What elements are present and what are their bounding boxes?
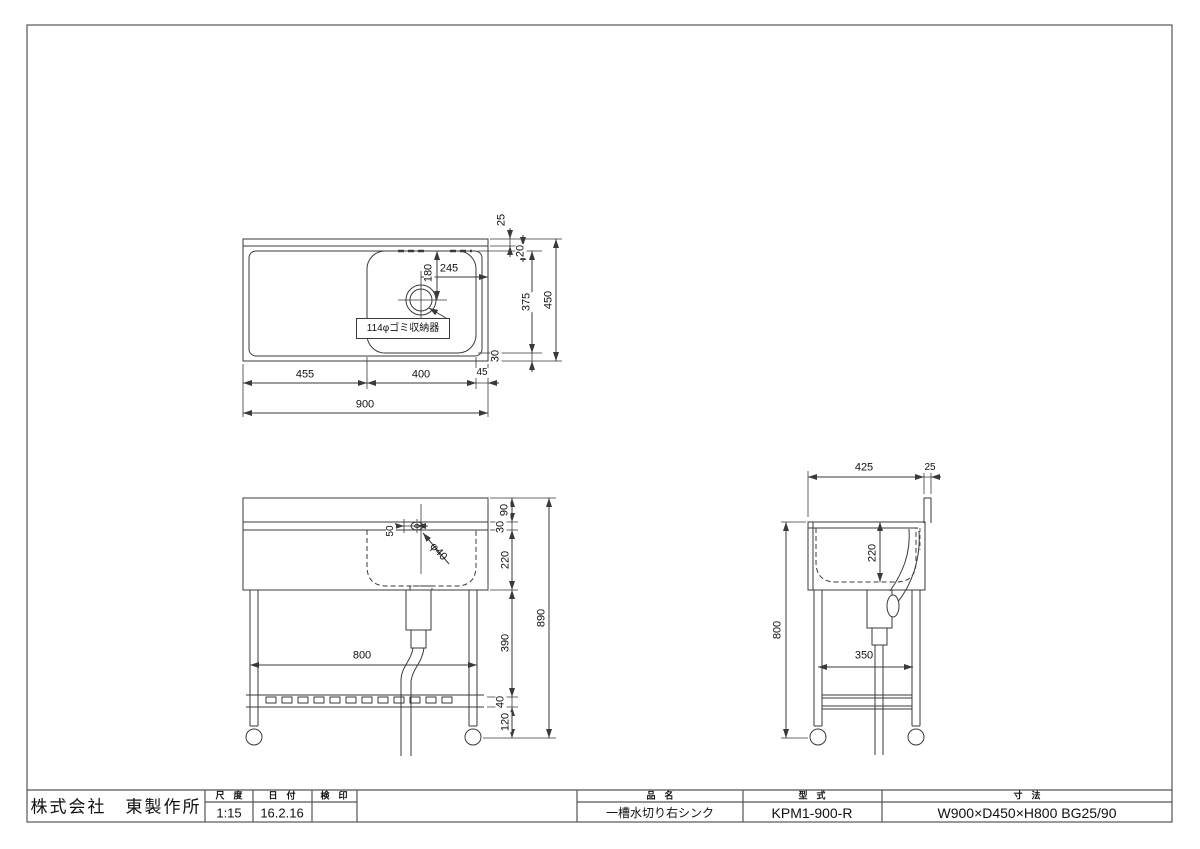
model-label: 型 式 (798, 792, 825, 801)
shelf-slats (266, 697, 452, 703)
date-label: 日 付 (268, 792, 295, 801)
plan-dim-450: 450 (544, 290, 555, 310)
drain-basket-label: 114φゴミ収納器 (356, 318, 450, 339)
front-dim-890: 890 (537, 608, 548, 628)
company-name: 株式会社 東製作所 (31, 799, 202, 816)
scale-label: 尺 度 (215, 792, 242, 801)
model-value: KPM1-900-R (772, 806, 853, 820)
size-label: 寸 法 (1013, 792, 1040, 801)
front-dim-90: 90 (500, 503, 511, 517)
plan-dim-180: 180 (424, 263, 435, 283)
side-dim-350: 350 (854, 651, 874, 662)
side-view-linework (781, 471, 941, 755)
product-name-label: 品 名 (646, 792, 673, 801)
size-value: W900×D450×H800 BG25/90 (937, 806, 1116, 820)
drawing-linework (0, 0, 1200, 849)
date-value: 16.2.16 (260, 807, 303, 820)
plan-dim-45: 45 (475, 368, 488, 378)
stamp-label: 検 印 (320, 792, 347, 801)
plan-dim-25: 25 (497, 213, 508, 227)
plan-dim-400: 400 (411, 370, 431, 381)
front-dim-30: 30 (496, 520, 507, 534)
scale-value: 1:15 (216, 807, 241, 820)
drawing-sheet: 455 400 45 900 25 20 375 30 450 245 180 … (0, 0, 1200, 849)
front-dim-220: 220 (501, 550, 512, 570)
plan-dim-30: 30 (491, 349, 502, 363)
plan-dim-20: 20 (516, 244, 527, 258)
frame-and-title-block (27, 25, 1172, 822)
product-name-value: 一槽水切り右シンク (606, 807, 714, 819)
plan-dim-455: 455 (295, 370, 315, 381)
front-dim-120: 120 (501, 712, 512, 732)
plan-dim-900: 900 (355, 400, 375, 411)
front-dim-50: 50 (386, 524, 396, 537)
plan-dim-245: 245 (439, 264, 459, 275)
plan-dim-375: 375 (522, 292, 533, 312)
side-dim-425: 425 (854, 463, 874, 474)
side-dim-25: 25 (923, 463, 936, 473)
front-dim-40: 40 (496, 695, 507, 709)
front-dim-800: 800 (352, 651, 372, 662)
side-dim-800: 800 (773, 620, 784, 640)
front-dim-390: 390 (501, 633, 512, 653)
side-dim-220: 220 (868, 543, 879, 563)
